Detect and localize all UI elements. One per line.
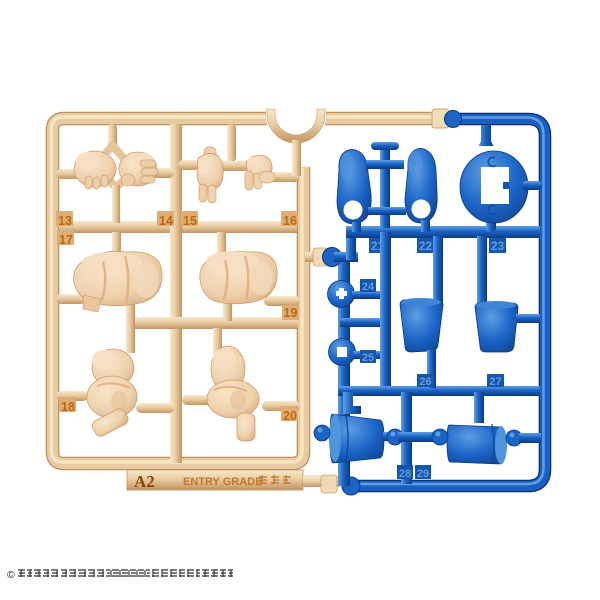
svg-text:23: 23 — [491, 239, 505, 253]
svg-text:A2: A2 — [134, 472, 155, 491]
svg-text:16: 16 — [283, 214, 297, 228]
svg-text:28: 28 — [399, 468, 411, 480]
svg-text:19: 19 — [284, 306, 298, 320]
svg-text:14: 14 — [159, 214, 173, 228]
svg-text:29: 29 — [417, 468, 429, 480]
svg-text:24: 24 — [362, 281, 375, 293]
svg-text:27: 27 — [489, 376, 501, 388]
svg-text:13: 13 — [58, 214, 72, 228]
svg-text:©: © — [7, 569, 15, 581]
svg-text:ENTRY GRADE: ENTRY GRADE — [183, 476, 262, 488]
svg-text:15: 15 — [183, 214, 197, 228]
svg-text:20: 20 — [283, 409, 297, 423]
svg-text:26: 26 — [419, 376, 431, 388]
svg-text:18: 18 — [61, 400, 75, 414]
svg-text:17: 17 — [59, 233, 73, 247]
svg-text:22: 22 — [419, 239, 433, 253]
svg-text:25: 25 — [362, 352, 374, 364]
